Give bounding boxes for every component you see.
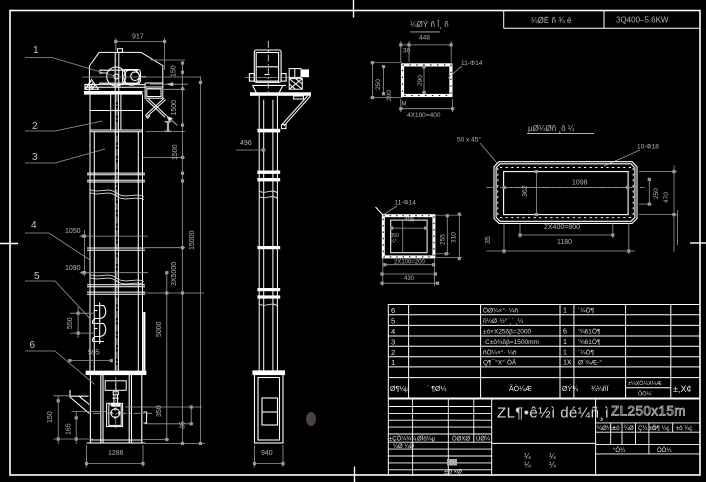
svg-text:50 x 45°: 50 x 45° bbox=[457, 136, 481, 144]
svg-text:ÖÔ¼: ÖÔ¼ bbox=[657, 447, 672, 454]
svg-text:917: 917 bbox=[132, 34, 144, 41]
svg-text:1050: 1050 bbox=[65, 228, 81, 235]
svg-text:5: 5 bbox=[34, 271, 40, 282]
svg-text:1286: 1286 bbox=[108, 450, 124, 457]
svg-text:±,X¢: ±,X¢ bbox=[673, 384, 691, 394]
svg-text:¼ØÝ ñ Î¸ ñ: ¼ØÝ ñ Î¸ ñ bbox=[410, 20, 449, 29]
svg-text:·C±ô¾δβ=1500mm: ·C±ô¾δβ=1500mm bbox=[483, 339, 539, 346]
svg-text:ÃÖ¼Æ: ÃÖ¼Æ bbox=[509, 384, 532, 393]
svg-text:4: 4 bbox=[391, 327, 395, 336]
svg-text:6: 6 bbox=[563, 329, 567, 336]
svg-text:4: 4 bbox=[31, 220, 37, 231]
svg-text:±ô: ±ô bbox=[613, 426, 620, 432]
svg-text:10-Φ18: 10-Φ18 bbox=[637, 144, 659, 151]
svg-text:3: 3 bbox=[391, 338, 395, 347]
svg-text:1: 1 bbox=[563, 308, 567, 315]
svg-text:1500: 1500 bbox=[172, 144, 179, 160]
svg-text:11-Φ14: 11-Φ14 bbox=[461, 60, 483, 67]
svg-text:¾¼ñÏ: ¾¼ñÏ bbox=[591, 385, 609, 393]
svg-text:ÚØ¼: ÚØ¼ bbox=[476, 436, 491, 443]
svg-text:2: 2 bbox=[32, 121, 38, 132]
svg-text:´¼Ö¶: ´¼Ö¶ bbox=[578, 307, 595, 315]
svg-text:362: 362 bbox=[522, 185, 529, 197]
svg-text:´ ¶Ø¼: ´ ¶Ø¼ bbox=[427, 386, 446, 393]
svg-text:250: 250 bbox=[375, 79, 382, 90]
svg-text:3X5000: 3X5000 bbox=[171, 262, 178, 286]
svg-text:°Ô¼: °Ô¼ bbox=[613, 447, 626, 454]
svg-text:ÔÖ¼´: ÔÖ¼´ bbox=[638, 391, 653, 398]
svg-text:±ÇÖ¼¾¼: ±ÇÖ¼¾¼ bbox=[389, 436, 417, 443]
svg-text:940: 940 bbox=[261, 450, 273, 457]
svg-text:'¾61Ö¶: '¾61Ö¶ bbox=[578, 338, 601, 346]
svg-text:1180: 1180 bbox=[557, 239, 572, 246]
svg-text:¼Ø ¼Ø: ¼Ø ¼Ø bbox=[393, 444, 414, 450]
svg-text:1: 1 bbox=[563, 339, 567, 346]
svg-text:1090: 1090 bbox=[65, 265, 81, 272]
svg-text:1500: 1500 bbox=[171, 100, 178, 116]
svg-text:595: 595 bbox=[88, 350, 100, 357]
svg-text:11-Φ14: 11-Φ14 bbox=[395, 200, 417, 207]
svg-text:550: 550 bbox=[67, 317, 74, 329]
svg-text:Q¶¯°X°´ÔÅ: Q¶¯°X°´ÔÅ bbox=[483, 358, 517, 367]
svg-text:3: 3 bbox=[32, 152, 38, 163]
svg-text:150: 150 bbox=[171, 65, 178, 77]
svg-text:±¼XÖ¼X¼Æ: ±¼XÖ¼X¼Æ bbox=[628, 380, 662, 387]
svg-text:4X100=400: 4X100=400 bbox=[407, 112, 441, 119]
svg-text:ÒØXØ: ÒØXØ bbox=[452, 436, 470, 443]
svg-text:2X100=200: 2X100=200 bbox=[394, 259, 426, 265]
svg-text:405: 405 bbox=[405, 218, 416, 224]
svg-text:3Q400–5.6KW: 3Q400–5.6KW bbox=[616, 16, 669, 25]
svg-text:1098: 1098 bbox=[572, 180, 588, 187]
svg-text:ñ¼Ø·½°´¸´ ¸¼: ñ¼Ø·½°´¸´ ¸¼ bbox=[483, 317, 524, 325]
svg-text:15000: 15000 bbox=[189, 230, 196, 250]
svg-text:6: 6 bbox=[391, 306, 395, 315]
svg-text:5000: 5000 bbox=[156, 321, 163, 337]
svg-text:ZL250x15m: ZL250x15m bbox=[611, 404, 686, 419]
svg-text:35: 35 bbox=[485, 236, 492, 244]
svg-text:¼: ¼ bbox=[549, 461, 556, 470]
svg-text:1: 1 bbox=[563, 350, 567, 357]
svg-text:496: 496 bbox=[240, 140, 252, 147]
svg-text:¼: ¼ bbox=[524, 461, 531, 470]
svg-text:±ô ¼ç: ±ô ¼ç bbox=[676, 426, 692, 432]
svg-text:M: M bbox=[402, 102, 407, 108]
svg-text:´¼Ö¶: ´¼Ö¶ bbox=[578, 349, 595, 357]
svg-text:¼Ø: ¼Ø bbox=[624, 426, 634, 432]
svg-text:5: 5 bbox=[391, 317, 395, 326]
svg-text:¼ØÈ ñ ¾ é: ¼ØÈ ñ ¾ é bbox=[531, 16, 572, 25]
svg-text:±ô×X25δβ=2000: ±ô×X25δβ=2000 bbox=[483, 329, 532, 336]
svg-text:¼°·: ¼°· bbox=[391, 239, 399, 245]
svg-text:Ö¶ ¼ç: Ö¶ ¼ç bbox=[652, 425, 670, 432]
svg-text:6: 6 bbox=[30, 340, 36, 351]
svg-text:Ø´¾Æ·°: Ø´¾Æ·° bbox=[578, 359, 602, 367]
svg-text:µØ¼Øñ ¸ô ¼: µØ¼Øñ ¸ô ¼ bbox=[528, 124, 575, 133]
svg-text:1: 1 bbox=[33, 45, 39, 56]
svg-text:1X: 1X bbox=[563, 360, 572, 367]
svg-text:290: 290 bbox=[386, 90, 393, 101]
svg-text:35: 35 bbox=[180, 421, 187, 429]
svg-text:1: 1 bbox=[391, 358, 395, 367]
svg-text:150: 150 bbox=[47, 411, 54, 423]
svg-text:ñÖ¼×°· ¼ñ: ñÖ¼×°· ¼ñ bbox=[483, 349, 517, 357]
svg-text:30: 30 bbox=[403, 48, 411, 55]
svg-text:430: 430 bbox=[404, 276, 415, 282]
svg-text:ØÝ¼: ØÝ¼ bbox=[562, 384, 578, 393]
svg-text:470: 470 bbox=[663, 192, 670, 203]
svg-text:2: 2 bbox=[391, 348, 395, 357]
svg-text:255: 255 bbox=[440, 234, 447, 245]
svg-text:290: 290 bbox=[417, 75, 424, 86]
svg-text:ZL¶•ê½ì dé¼ñ¸ì: ZL¶•ê½ì dé¼ñ¸ì bbox=[497, 405, 609, 422]
svg-text:350: 350 bbox=[156, 405, 163, 417]
svg-text:250: 250 bbox=[653, 188, 660, 199]
svg-text:ÖØ¼×°· ¼ñ: ÖØ¼×°· ¼ñ bbox=[483, 307, 518, 315]
svg-text:165: 165 bbox=[66, 423, 73, 435]
svg-text:448: 448 bbox=[419, 35, 430, 42]
svg-text:2X400=800: 2X400=800 bbox=[544, 224, 580, 231]
svg-text:'¾61Ö¶: '¾61Ö¶ bbox=[578, 328, 601, 336]
svg-text:±Ø ×Ø: ±Ø ×Ø bbox=[444, 470, 462, 476]
svg-text:Ø¶¼µ: Ø¶¼µ bbox=[390, 386, 409, 393]
svg-text:¸ØÏö¼µ: ¸ØÏö¼µ bbox=[415, 436, 436, 443]
svg-text:310: 310 bbox=[451, 232, 458, 243]
